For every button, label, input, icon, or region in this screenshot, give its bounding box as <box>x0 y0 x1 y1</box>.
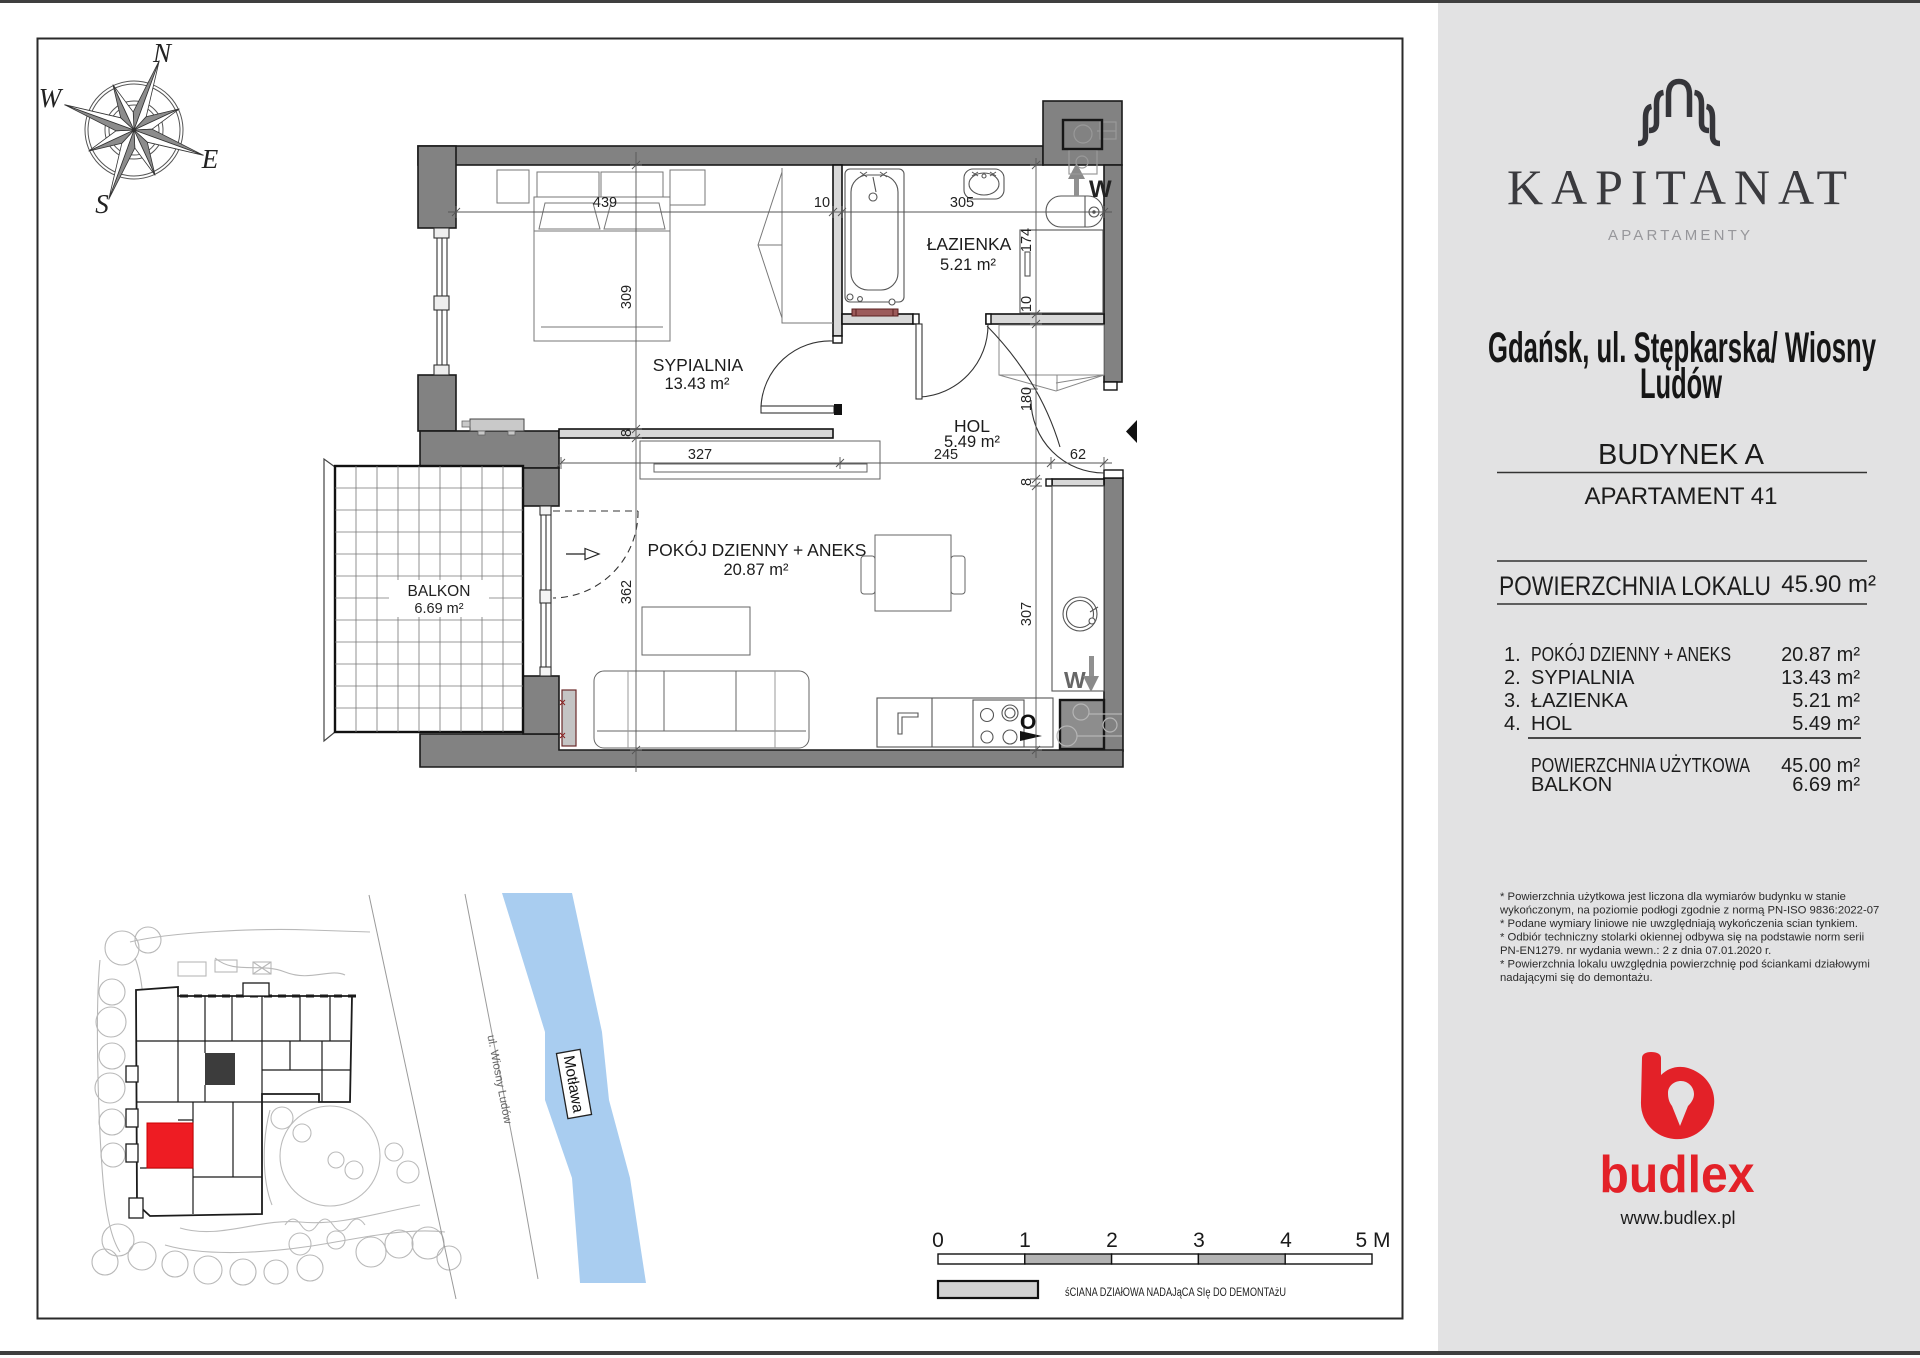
svg-text:6.69 m²: 6.69 m² <box>1792 774 1860 796</box>
svg-text:ŁAZIENKA: ŁAZIENKA <box>927 234 1012 254</box>
svg-text:4.: 4. <box>1504 713 1521 735</box>
svg-text:5.49 m²: 5.49 m² <box>944 433 1000 451</box>
svg-text:KAPITANAT: KAPITANAT <box>1507 159 1851 215</box>
svg-text:BUDYNEK A: BUDYNEK A <box>1598 439 1765 471</box>
svg-text:Ludów: Ludów <box>1640 360 1722 408</box>
svg-text:5.49 m²: 5.49 m² <box>1792 713 1860 735</box>
svg-text:S: S <box>95 189 109 219</box>
svg-text:* Podane wymiary liniowe nie u: * Podane wymiary liniowe nie uwzględniaj… <box>1500 918 1858 930</box>
svg-text:305: 305 <box>950 195 974 211</box>
svg-text:W: W <box>39 83 64 113</box>
svg-text:PN-EN1279. nr wydania wewn.: 2: PN-EN1279. nr wydania wewn.: 2 z dnia 07… <box>1500 945 1771 957</box>
svg-text:307: 307 <box>1019 602 1035 626</box>
svg-text:6.69 m²: 6.69 m² <box>414 601 463 617</box>
svg-text:327: 327 <box>688 447 712 463</box>
svg-text:5.21 m²: 5.21 m² <box>1792 690 1860 712</box>
svg-text:budlex: budlex <box>1600 1146 1755 1204</box>
svg-text:E: E <box>201 144 219 174</box>
svg-text:20.87 m²: 20.87 m² <box>723 561 789 579</box>
svg-text:APARTAMENT 41: APARTAMENT 41 <box>1585 483 1778 510</box>
svg-text:* Powierzchnia użytkowa jest l: * Powierzchnia użytkowa jest liczona dla… <box>1500 891 1846 903</box>
svg-text:10: 10 <box>1019 296 1035 312</box>
svg-text:W: W <box>1089 176 1112 203</box>
svg-text:4: 4 <box>1280 1229 1292 1252</box>
svg-text:5.21 m²: 5.21 m² <box>940 256 996 274</box>
svg-text:3: 3 <box>1193 1229 1205 1252</box>
svg-text:nadającymi się do demontażu.: nadającymi się do demontażu. <box>1500 972 1653 984</box>
svg-text:10: 10 <box>814 195 830 211</box>
svg-text:45.90 m²: 45.90 m² <box>1781 571 1876 598</box>
svg-text:0: 0 <box>932 1229 944 1252</box>
svg-text:20.87 m²: 20.87 m² <box>1781 644 1860 666</box>
svg-text:13.43 m²: 13.43 m² <box>664 375 730 393</box>
svg-text:BALKON: BALKON <box>408 583 471 600</box>
svg-text:ŁAZIENKA: ŁAZIENKA <box>1531 690 1628 712</box>
svg-text:362: 362 <box>619 580 635 604</box>
svg-text:174: 174 <box>1019 228 1035 252</box>
svg-text:1.: 1. <box>1504 644 1521 666</box>
svg-text:5 M: 5 M <box>1355 1229 1390 1252</box>
svg-text:POKÓJ DZIENNY + ANEKS: POKÓJ DZIENNY + ANEKS <box>648 539 867 560</box>
svg-text:13.43 m²: 13.43 m² <box>1781 667 1860 689</box>
svg-text:* Powierzchnia lokalu uwzględn: * Powierzchnia lokalu uwzględnia powierz… <box>1500 959 1870 971</box>
svg-text:8: 8 <box>619 429 635 437</box>
svg-text:HOL: HOL <box>1531 713 1572 735</box>
svg-text:62: 62 <box>1070 447 1086 463</box>
svg-text:* Odbiór techniczny stolarki o: * Odbiór techniczny stolarki okiennej od… <box>1500 932 1864 944</box>
svg-text:2.: 2. <box>1504 667 1521 689</box>
svg-text:309: 309 <box>619 285 635 309</box>
svg-text:180: 180 <box>1019 387 1035 411</box>
svg-text:2: 2 <box>1106 1229 1118 1252</box>
svg-text:SYPIALNIA: SYPIALNIA <box>1531 667 1635 689</box>
svg-text:O: O <box>1020 711 1036 734</box>
svg-text:N: N <box>152 38 173 68</box>
svg-text:www.budlex.pl: www.budlex.pl <box>1619 1208 1735 1228</box>
svg-text:3.: 3. <box>1504 690 1521 712</box>
svg-text:BALKON: BALKON <box>1531 774 1612 796</box>
svg-text:439: 439 <box>593 195 617 211</box>
svg-text:POKÓJ DZIENNY + ANEKS: POKÓJ DZIENNY + ANEKS <box>1531 643 1731 666</box>
svg-text:POWIERZCHNIA LOKALU: POWIERZCHNIA LOKALU <box>1499 571 1771 601</box>
svg-text:8: 8 <box>1019 478 1035 486</box>
svg-text:śCIANA DZIAłOWA NADAJąCA SIę D: śCIANA DZIAłOWA NADAJąCA SIę DO DEMONTAż… <box>1065 1287 1286 1299</box>
svg-text:wykończonym, na poziomie podło: wykończonym, na poziomie podłogi zgodnie… <box>1499 905 1879 917</box>
svg-text:1: 1 <box>1019 1229 1031 1252</box>
svg-text:W: W <box>1064 667 1086 693</box>
svg-text:APARTAMENTY: APARTAMENTY <box>1608 227 1750 244</box>
svg-text:SYPIALNIA: SYPIALNIA <box>653 355 744 375</box>
